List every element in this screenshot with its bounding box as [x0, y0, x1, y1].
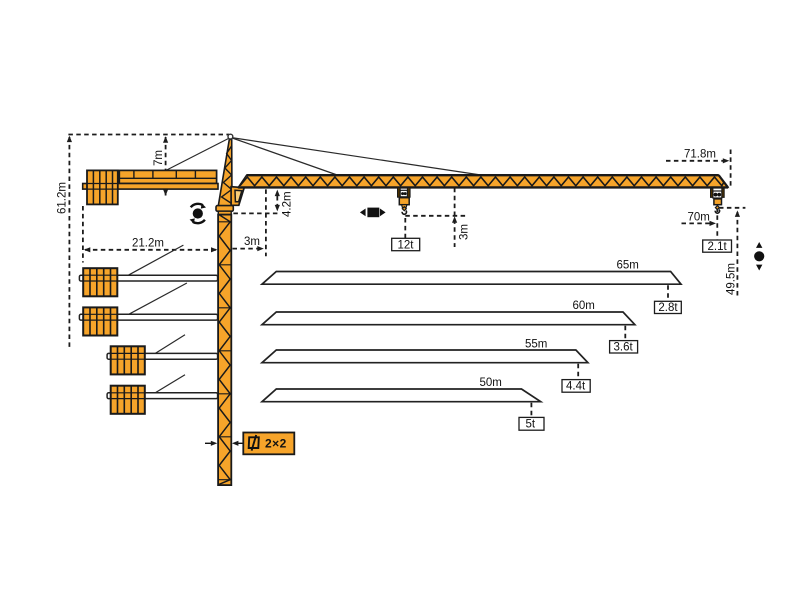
svg-text:7m: 7m — [153, 150, 165, 166]
svg-text:55m: 55m — [525, 338, 547, 350]
svg-text:49.5m: 49.5m — [726, 263, 738, 295]
svg-text:4.2m: 4.2m — [282, 191, 294, 217]
svg-text:70m: 70m — [688, 211, 710, 223]
svg-text:65m: 65m — [617, 260, 639, 272]
svg-text:50m: 50m — [480, 377, 502, 389]
svg-text:21.2m: 21.2m — [132, 237, 164, 249]
svg-text:71.8m: 71.8m — [684, 148, 716, 160]
svg-text:4.4t: 4.4t — [566, 381, 586, 393]
svg-text:61.2m: 61.2m — [57, 182, 69, 214]
svg-text:60m: 60m — [573, 300, 595, 312]
svg-text:2.8t: 2.8t — [658, 302, 678, 314]
svg-text:5t: 5t — [526, 419, 536, 431]
svg-text:3m: 3m — [459, 224, 471, 240]
svg-text:3.6t: 3.6t — [614, 342, 634, 354]
svg-text:3m: 3m — [244, 236, 260, 248]
svg-text:2.1t: 2.1t — [708, 241, 728, 253]
svg-text:12t: 12t — [398, 239, 415, 251]
svg-text:2×2: 2×2 — [265, 437, 287, 451]
